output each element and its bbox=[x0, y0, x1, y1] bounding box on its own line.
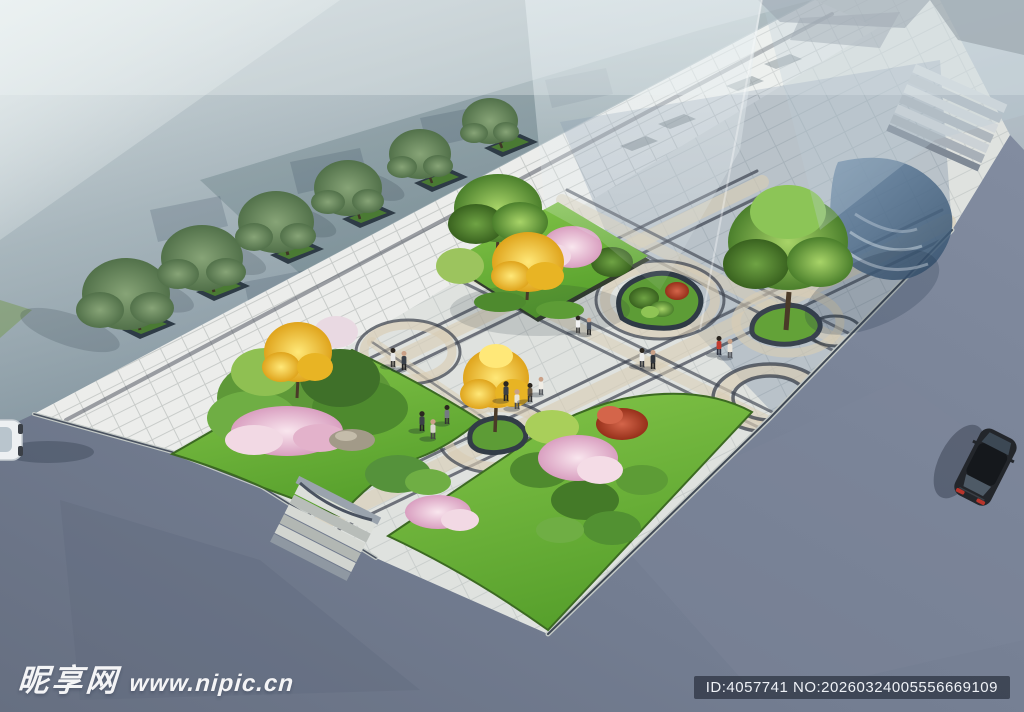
watermark-site-url: www.nipic.cn bbox=[129, 670, 295, 698]
render-canvas: 昵享网 www.nipic.cn ID:4057741 NO:202603240… bbox=[0, 0, 1024, 712]
watermark-id-badge: ID:4057741 NO:20260324005556669109 bbox=[694, 676, 1010, 699]
ginkgo-tree-pit bbox=[470, 418, 526, 453]
watermark-logo: 昵享网 www.nipic.cn bbox=[16, 655, 296, 700]
watermark-site-name: 昵享网 bbox=[16, 655, 121, 700]
red-shrub bbox=[665, 282, 689, 300]
plaza-rendering bbox=[0, 0, 1024, 712]
